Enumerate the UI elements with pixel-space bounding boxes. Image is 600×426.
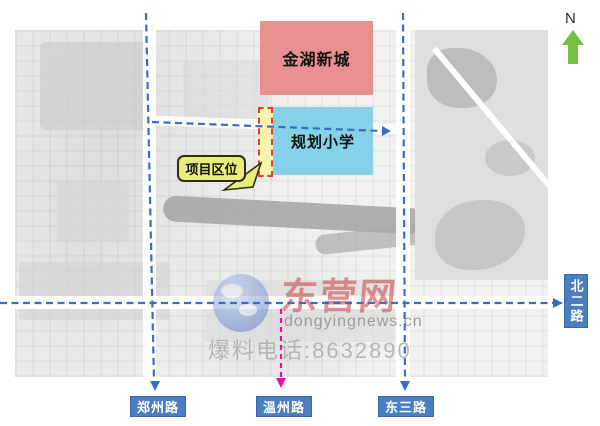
north-letter: N xyxy=(565,10,576,27)
project-location-callout: 项目区位 xyxy=(177,155,246,182)
road-label-beier: 北二路 xyxy=(564,274,588,328)
road-label-text: 郑州路 xyxy=(137,397,179,416)
road-label-zhengzhou: 郑州路 xyxy=(130,396,186,417)
project-site-strip xyxy=(258,107,273,177)
watermark-hotline: 爆料电话:8632890 xyxy=(208,333,412,365)
watermark-globe-logo xyxy=(213,274,269,332)
road-label-text: 北二路 xyxy=(567,279,586,324)
dongsan-arrowhead-icon xyxy=(400,381,410,391)
globe-swirl xyxy=(239,304,257,316)
map-texture-patch xyxy=(183,60,269,120)
map-texture-patch xyxy=(57,180,129,242)
zone-school-label: 规划小学 xyxy=(291,131,355,152)
north-arrow-icon xyxy=(562,30,584,64)
zone-planned-school: 规划小学 xyxy=(273,107,373,175)
callout-label: 项目区位 xyxy=(185,159,237,178)
watermark-site-url: dongyingnews.cn xyxy=(284,313,423,331)
zone-jinhu-label: 金湖新城 xyxy=(282,46,350,70)
wenzhou-arrowhead-icon xyxy=(276,378,286,388)
road-label-text: 温州路 xyxy=(263,397,305,416)
road-label-dongsan: 东三路 xyxy=(378,396,434,417)
zhengzhou-arrowhead-icon xyxy=(150,381,160,391)
globe-swirl xyxy=(221,284,243,298)
map-street xyxy=(143,30,156,377)
zone-jinhu-xincheng: 金湖新城 xyxy=(260,21,373,95)
road-label-wenzhou: 温州路 xyxy=(256,396,312,417)
road-label-text: 东三路 xyxy=(385,397,427,416)
beier-arrowhead-icon xyxy=(553,298,563,308)
map-texture-patch xyxy=(40,42,152,130)
location-map-figure: 金湖新城 规划小学 东营网 dongyingnews.cn 爆料电话:86328… xyxy=(0,0,600,426)
watermark-site-name: 东营网 xyxy=(279,266,401,320)
